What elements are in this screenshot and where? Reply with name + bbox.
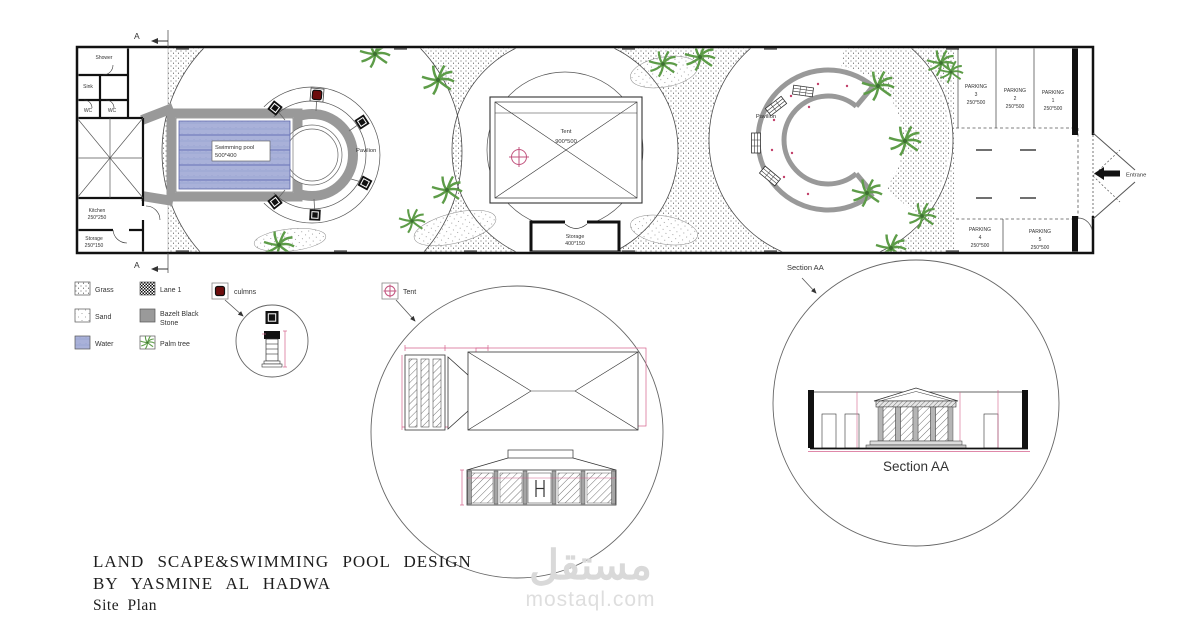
water-swatch [75, 336, 90, 349]
right-pavilion: Pavilion [752, 70, 874, 210]
room-label-shower: Shower [96, 55, 113, 61]
room-label-wc: WC [84, 108, 93, 114]
site-plan-canvas: Swimming pool 500*400 Pavilion Tent 900*… [0, 0, 1181, 636]
parking-label: PARKING [969, 227, 991, 233]
pool-dims: 500*400 [215, 153, 237, 159]
room-label-kitchen: Kitchen [89, 208, 106, 214]
column-detail [225, 300, 308, 377]
parking-dims: 250*500 [967, 100, 986, 106]
title-line-1: LAND SCAPE&SWIMMING POOL DESIGN [93, 551, 472, 573]
title-line-3: Site Plan [93, 595, 472, 617]
service-rooms: Shower Sink WC WC Kitchen 250*250 Storag… [77, 47, 160, 253]
bench [752, 133, 761, 153]
parking-label: PARKING [965, 84, 987, 90]
legend-columns-label: culmns [234, 289, 257, 296]
room-dims-kitchen: 250*250 [88, 215, 107, 221]
center-storage: Storage 400*150 [531, 218, 619, 252]
parking-dims: 250*500 [1031, 245, 1050, 251]
entrance-label: Entrane [1126, 173, 1146, 179]
site-plan-sheet: Swimming pool 500*400 Pavilion Tent 900*… [0, 0, 1181, 636]
column-marker [309, 209, 321, 221]
tent-dims: 900*500 [555, 139, 577, 145]
parking-number: 3 [975, 92, 978, 98]
legend-tent-label: Tent [403, 289, 416, 296]
parking-label: PARKING [1004, 88, 1026, 94]
column-red-icon [216, 287, 225, 296]
parking-dims: 250*500 [1044, 106, 1063, 112]
room-label-sink: Sink [83, 84, 93, 90]
tent-roof-plan [468, 348, 646, 430]
column-marker [358, 176, 373, 191]
legend-lane-label: Lane 1 [160, 287, 182, 294]
legend-water-label: Water [95, 341, 114, 348]
parking-number: 4 [979, 235, 982, 241]
legend-sand-label: Sand [95, 314, 111, 321]
parking-label: PARKING [1029, 229, 1051, 235]
entrance-arrow-icon [1094, 167, 1120, 180]
pavilion-left-label: Pavilion [356, 148, 376, 154]
bench [792, 85, 813, 97]
legend-bazelt-label-2: Stone [160, 320, 178, 327]
section-marker-top: A [134, 30, 168, 47]
section-marker-letter: A [134, 31, 140, 41]
room-dims-storage: 250*150 [85, 243, 104, 249]
section-caption: Section AA [883, 459, 949, 474]
pavilion-right-label: Pavilion [756, 114, 776, 120]
tent-label: Tent [561, 129, 572, 135]
sand-swatch [75, 309, 90, 322]
section-callout-label: Section AA [787, 263, 824, 272]
section-marker-letter: A [134, 260, 140, 270]
tent-structure: Tent 900*500 [487, 72, 643, 228]
legend-palm-label: Palm tree [160, 341, 190, 348]
tent-detail [371, 286, 663, 578]
highlighted-column-marker [310, 88, 324, 102]
main-site-plan: Swimming pool 500*400 Pavilion Tent 900*… [77, 2, 1146, 302]
legend-grass-label: Grass [95, 287, 114, 294]
section-aa-detail: Section AA Section AA [773, 260, 1059, 546]
grass-swatch [75, 282, 90, 295]
parking-label: PARKING [1042, 90, 1064, 96]
bazelt-swatch [140, 309, 155, 322]
pool-complex: Swimming pool 500*400 Pavilion [142, 87, 380, 223]
roof-lines [77, 118, 143, 198]
column-marker [354, 114, 369, 129]
legend-bazelt-label-1: Bazelt Black [160, 311, 199, 318]
parking-dims: 250*500 [971, 243, 990, 249]
title-line-2: BY YASMINE AL HADWA [93, 573, 472, 595]
room-label-storage: Storage [85, 236, 103, 242]
center-storage-dims: 400*150 [565, 241, 585, 247]
parking-number: 5 [1039, 237, 1042, 243]
lane-swatch [140, 282, 155, 295]
room-label-wc: WC [108, 108, 117, 114]
parking-dims: 250*500 [1006, 104, 1025, 110]
pool-label: Swimming pool [215, 145, 254, 151]
section-marker-bottom: A [134, 253, 168, 273]
parking-number: 1 [1052, 98, 1055, 104]
entrance: Entrane [1093, 133, 1146, 219]
title-block: LAND SCAPE&SWIMMING POOL DESIGN BY YASMI… [93, 551, 472, 617]
center-storage-label: Storage [566, 234, 585, 240]
parking-number: 2 [1014, 96, 1017, 102]
